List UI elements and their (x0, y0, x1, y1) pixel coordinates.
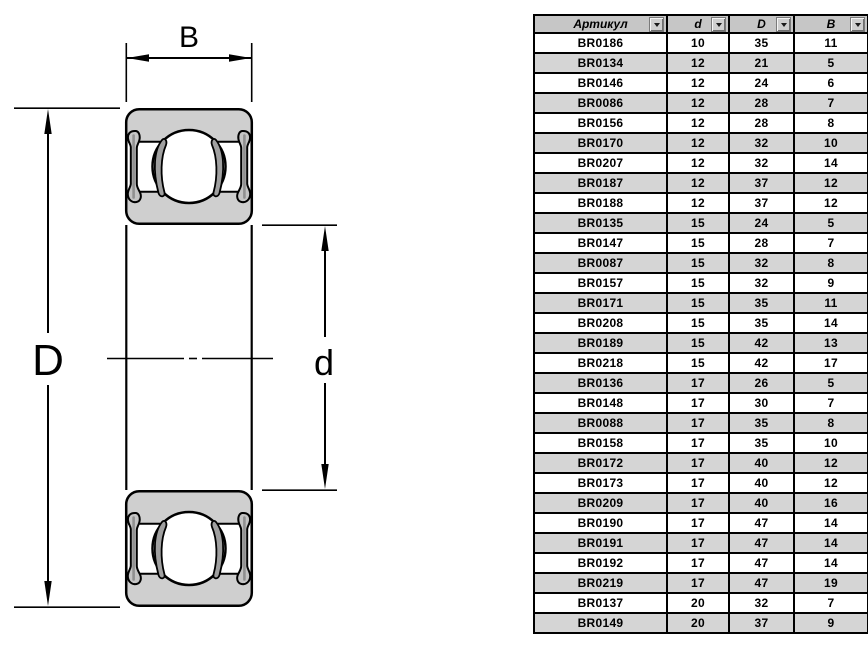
cell-article: BR0149 (534, 613, 667, 633)
cell-article: BR0158 (534, 433, 667, 453)
table-cell: 40 (729, 453, 794, 473)
cell-article: BR0219 (534, 573, 667, 593)
table-row: BR008817358 (534, 413, 868, 433)
column-header-d: d (667, 15, 729, 33)
table-cell: 32 (729, 273, 794, 293)
table-cell: 8 (794, 253, 868, 273)
table-cell: 37 (729, 613, 794, 633)
dim-label-B: B (179, 21, 199, 54)
table-cell: 17 (667, 393, 729, 413)
table-row: BR015715329 (534, 273, 868, 293)
chevron-down-icon (781, 23, 787, 27)
table-header-row: АртикулdDB (534, 15, 868, 33)
table-cell: 21 (729, 53, 794, 73)
table-cell: 7 (794, 233, 868, 253)
table-row: BR0190174714 (534, 513, 868, 533)
table-row: BR0189154213 (534, 333, 868, 353)
arrowhead-up-icon (321, 226, 328, 251)
table-cell: 12 (667, 53, 729, 73)
table-cell: 24 (729, 213, 794, 233)
bearing-size-table: АртикулdDB BR0186103511BR013412215BR0146… (533, 14, 868, 634)
table-cell: 15 (667, 213, 729, 233)
table-cell: 17 (667, 493, 729, 513)
table-cell: 7 (794, 93, 868, 113)
table-cell: 20 (667, 613, 729, 633)
table-cell: 12 (794, 173, 868, 193)
cell-article: BR0190 (534, 513, 667, 533)
table-cell: 13 (794, 333, 868, 353)
table-cell: 47 (729, 533, 794, 553)
table-row: BR0187123712 (534, 173, 868, 193)
table-row: BR014715287 (534, 233, 868, 253)
arrowhead-up-icon (44, 109, 51, 134)
table-cell: 14 (794, 533, 868, 553)
dim-label-D: D (32, 336, 64, 385)
dimension-B: B (126, 21, 251, 102)
table-cell: 17 (667, 473, 729, 493)
table-cell: 26 (729, 373, 794, 393)
cell-article: BR0170 (534, 133, 667, 153)
table-cell: 12 (667, 93, 729, 113)
table-cell: 12 (667, 173, 729, 193)
table-cell: 17 (667, 373, 729, 393)
table-cell: 12 (667, 73, 729, 93)
bearing-section-bottom (126, 491, 252, 606)
column-header-article: Артикул (534, 15, 667, 33)
table-cell: 17 (667, 533, 729, 553)
column-header-label: B (827, 17, 836, 31)
table-cell: 35 (729, 33, 794, 53)
table-cell: 24 (729, 73, 794, 93)
cell-article: BR0171 (534, 293, 667, 313)
table-row: BR013720327 (534, 593, 868, 613)
cell-article: BR0209 (534, 493, 667, 513)
cell-article: BR0156 (534, 113, 667, 133)
table-cell: 35 (729, 433, 794, 453)
table-cell: 7 (794, 593, 868, 613)
column-header-label: d (694, 17, 701, 31)
bearing-section-top (126, 109, 252, 224)
cell-article: BR0173 (534, 473, 667, 493)
table-cell: 5 (794, 213, 868, 233)
table-cell: 8 (794, 413, 868, 433)
cell-article: BR0188 (534, 193, 667, 213)
filter-dropdown-button[interactable] (776, 17, 791, 32)
table-row: BR0219174719 (534, 573, 868, 593)
table-head: АртикулdDB (534, 15, 868, 33)
cell-article: BR0086 (534, 93, 667, 113)
cell-article: BR0186 (534, 33, 667, 53)
chevron-down-icon (716, 23, 722, 27)
cell-article: BR0189 (534, 333, 667, 353)
table-cell: 17 (667, 413, 729, 433)
table-cell: 15 (667, 333, 729, 353)
column-header-label: Артикул (573, 17, 627, 31)
table-cell: 11 (794, 33, 868, 53)
table-row: BR0173174012 (534, 473, 868, 493)
table-cell: 17 (667, 573, 729, 593)
table-cell: 12 (794, 453, 868, 473)
table-cell: 28 (729, 93, 794, 113)
cell-article: BR0087 (534, 253, 667, 273)
table-cell: 16 (794, 493, 868, 513)
table-cell: 35 (729, 293, 794, 313)
cell-article: BR0146 (534, 73, 667, 93)
table-cell: 9 (794, 273, 868, 293)
cell-article: BR0207 (534, 153, 667, 173)
table-cell: 12 (667, 153, 729, 173)
table-cell: 12 (667, 193, 729, 213)
table-cell: 7 (794, 393, 868, 413)
table-row: BR0158173510 (534, 433, 868, 453)
table-cell: 40 (729, 493, 794, 513)
table-cell: 12 (667, 113, 729, 133)
dimension-d: d (262, 225, 342, 490)
cell-article: BR0192 (534, 553, 667, 573)
table-row: BR008612287 (534, 93, 868, 113)
page: { "diagram": { "dimension_labels": { "wi… (0, 0, 868, 650)
table-row: BR0191174714 (534, 533, 868, 553)
table-row: BR0209174016 (534, 493, 868, 513)
table-cell: 17 (667, 433, 729, 453)
cell-article: BR0137 (534, 593, 667, 613)
table-row: BR013617265 (534, 373, 868, 393)
table-cell: 35 (729, 413, 794, 433)
table-cell: 37 (729, 193, 794, 213)
table-cell: 47 (729, 553, 794, 573)
table-cell: 17 (667, 553, 729, 573)
table-row: BR0172174012 (534, 453, 868, 473)
table-cell: 35 (729, 313, 794, 333)
table-cell: 14 (794, 553, 868, 573)
cell-article: BR0135 (534, 213, 667, 233)
table-cell: 14 (794, 313, 868, 333)
cell-article: BR0088 (534, 413, 667, 433)
table-cell: 11 (794, 293, 868, 313)
cell-article: BR0148 (534, 393, 667, 413)
table-cell: 40 (729, 473, 794, 493)
table-cell: 9 (794, 613, 868, 633)
table-cell: 12 (794, 473, 868, 493)
arrowhead-right-icon (229, 54, 251, 62)
table-cell: 32 (729, 593, 794, 613)
table-cell: 15 (667, 253, 729, 273)
arrowhead-down-icon (44, 581, 51, 606)
dimension-D: D (14, 108, 120, 607)
table-cell: 12 (667, 133, 729, 153)
table-row: BR0186103511 (534, 33, 868, 53)
table-cell: 28 (729, 113, 794, 133)
cell-article: BR0172 (534, 453, 667, 473)
table-cell: 20 (667, 593, 729, 613)
table-row: BR008715328 (534, 253, 868, 273)
dim-label-d: d (314, 342, 334, 383)
table-cell: 10 (667, 33, 729, 53)
table-cell: 17 (667, 453, 729, 473)
table-cell: 15 (667, 313, 729, 333)
chevron-down-icon (855, 23, 861, 27)
filter-dropdown-button[interactable] (850, 17, 865, 32)
table-cell: 8 (794, 113, 868, 133)
table-cell: 17 (794, 353, 868, 373)
table-row: BR0208153514 (534, 313, 868, 333)
table-cell: 32 (729, 253, 794, 273)
table-cell: 6 (794, 73, 868, 93)
cell-article: BR0136 (534, 373, 667, 393)
table-row: BR013412215 (534, 53, 868, 73)
cell-article: BR0147 (534, 233, 667, 253)
table-cell: 10 (794, 133, 868, 153)
bearing-cross-section-diagram: B D d (0, 0, 520, 650)
arrowhead-left-icon (127, 54, 149, 62)
table-cell: 15 (667, 273, 729, 293)
table-cell: 32 (729, 133, 794, 153)
table-cell: 47 (729, 513, 794, 533)
table-row: BR0207123214 (534, 153, 868, 173)
cell-article: BR0157 (534, 273, 667, 293)
table-cell: 28 (729, 233, 794, 253)
table-cell: 19 (794, 573, 868, 593)
table-row: BR0218154217 (534, 353, 868, 373)
arrowhead-down-icon (321, 464, 328, 489)
column-header-D: D (729, 15, 794, 33)
table-cell: 10 (794, 433, 868, 453)
table-cell: 32 (729, 153, 794, 173)
cell-article: BR0134 (534, 53, 667, 73)
table-body: BR0186103511BR013412215BR014612246BR0086… (534, 33, 868, 633)
table-cell: 17 (667, 513, 729, 533)
cell-article: BR0208 (534, 313, 667, 333)
table-cell: 42 (729, 353, 794, 373)
table-cell: 30 (729, 393, 794, 413)
filter-dropdown-button[interactable] (711, 17, 726, 32)
filter-dropdown-button[interactable] (649, 17, 664, 32)
table-cell: 15 (667, 293, 729, 313)
table-row: BR0171153511 (534, 293, 868, 313)
table-row: BR015612288 (534, 113, 868, 133)
table-row: BR014920379 (534, 613, 868, 633)
cell-article: BR0187 (534, 173, 667, 193)
table-cell: 47 (729, 573, 794, 593)
column-header-label: D (757, 17, 766, 31)
column-header-B: B (794, 15, 868, 33)
table-cell: 14 (794, 153, 868, 173)
table-row: BR014612246 (534, 73, 868, 93)
chevron-down-icon (654, 23, 660, 27)
table-cell: 12 (794, 193, 868, 213)
table-cell: 14 (794, 513, 868, 533)
table-row: BR0170123210 (534, 133, 868, 153)
cell-article: BR0218 (534, 353, 667, 373)
table-row: BR0192174714 (534, 553, 868, 573)
table-row: BR014817307 (534, 393, 868, 413)
table-cell: 5 (794, 373, 868, 393)
table-cell: 37 (729, 173, 794, 193)
table-row: BR0188123712 (534, 193, 868, 213)
table-cell: 5 (794, 53, 868, 73)
table-cell: 15 (667, 353, 729, 373)
table-row: BR013515245 (534, 213, 868, 233)
table-cell: 15 (667, 233, 729, 253)
cell-article: BR0191 (534, 533, 667, 553)
table-cell: 42 (729, 333, 794, 353)
